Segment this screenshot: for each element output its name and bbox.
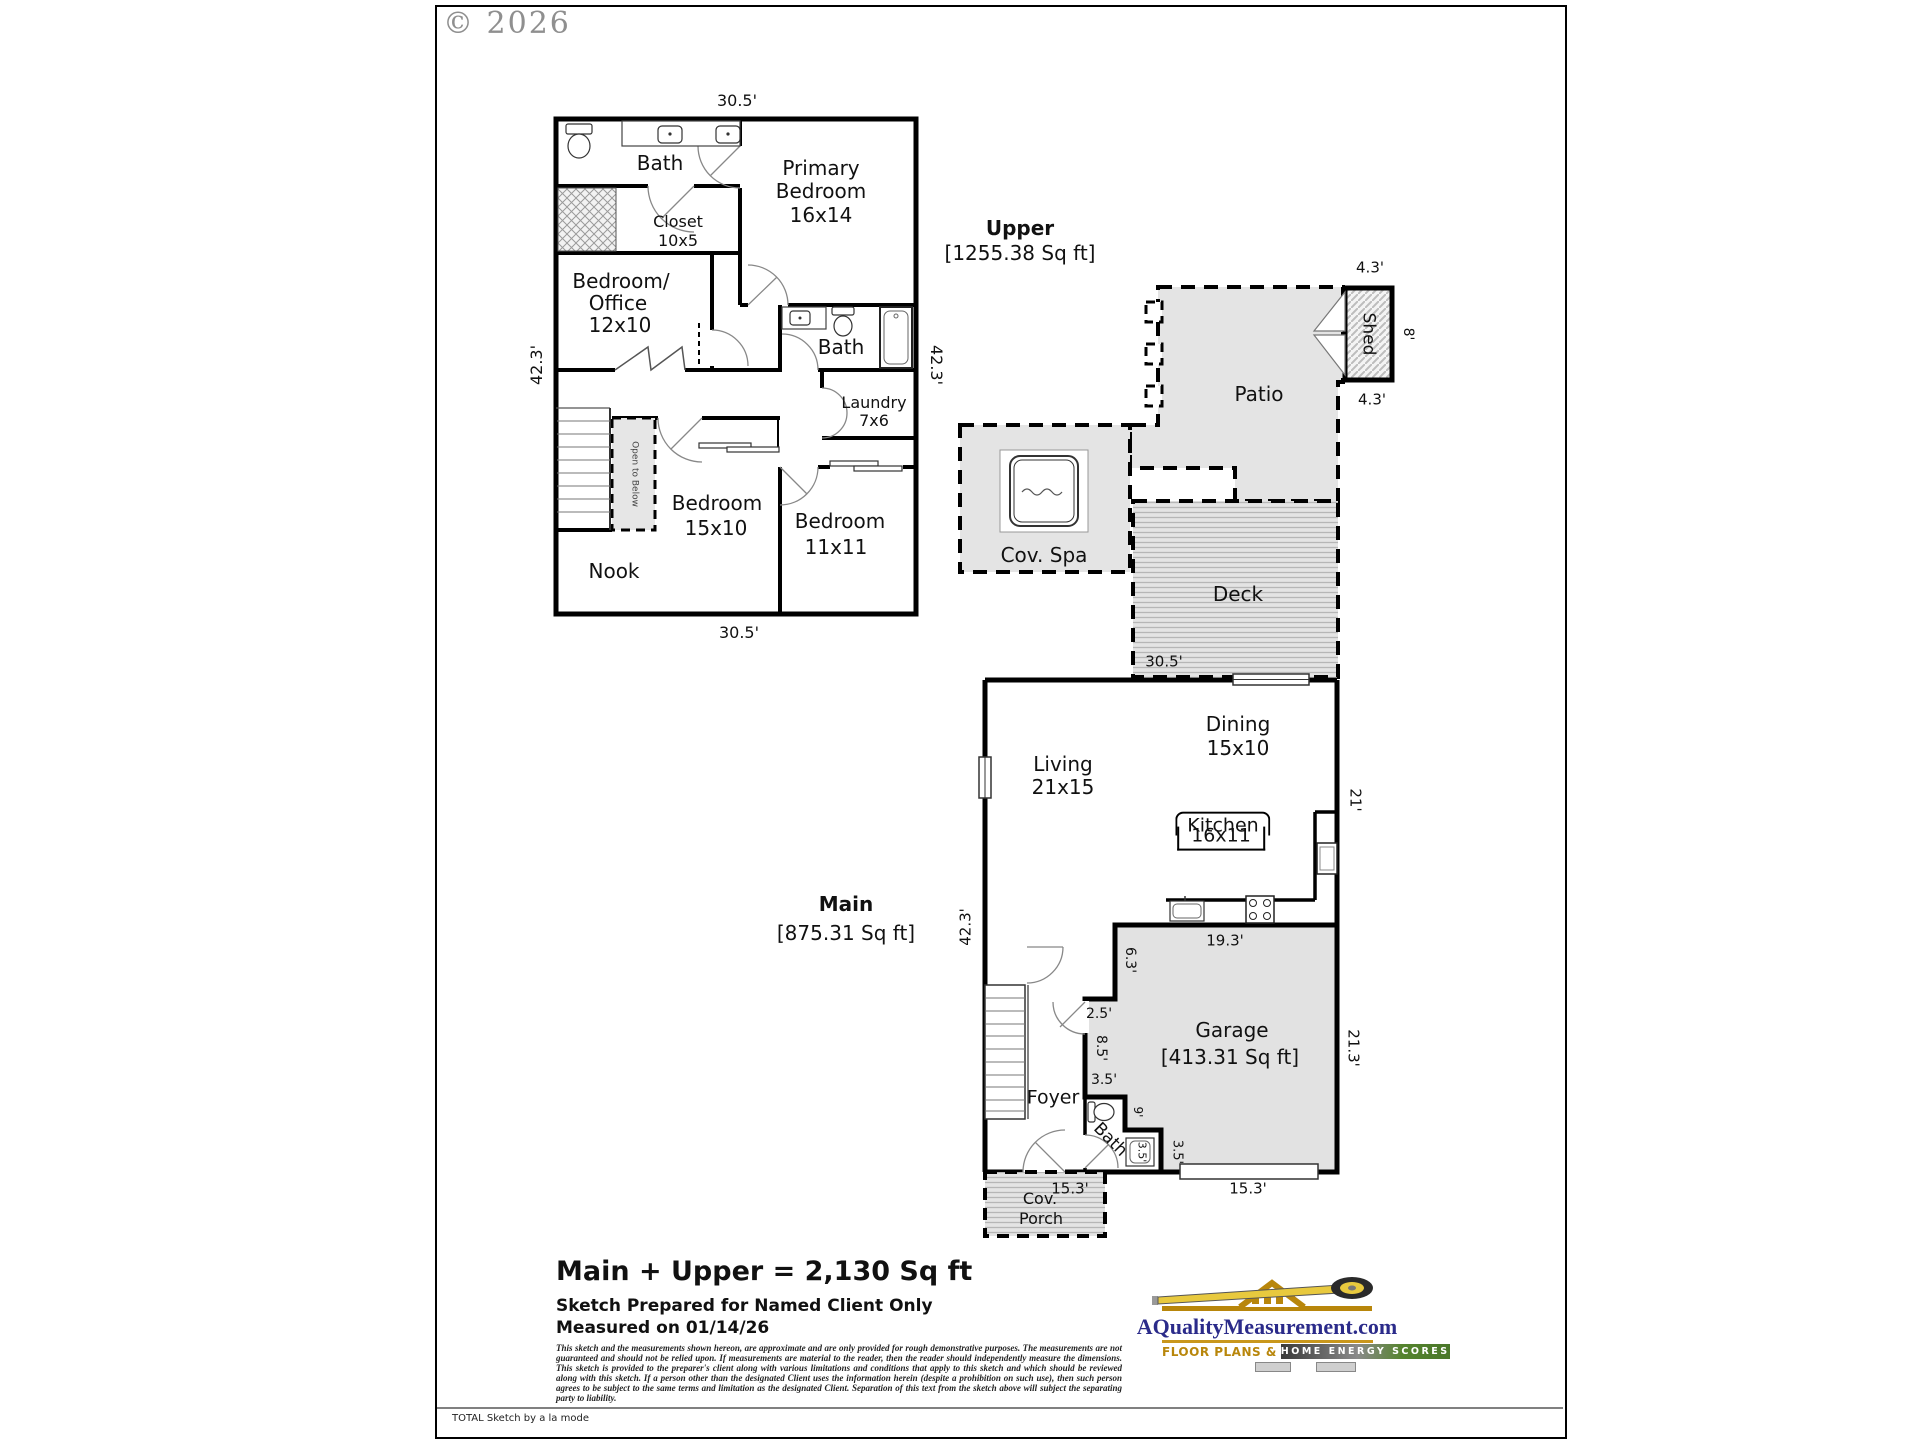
logo-taglines: FLOOR PLANS & HOME ENERGY SCORES (1162, 1344, 1374, 1359)
room-dim-closet: 10x5 (658, 233, 698, 249)
upper-dim-right: 42.3' (928, 345, 944, 385)
room-label-nook: Nook (588, 561, 639, 581)
room-dim-dining: 15x10 (1207, 738, 1270, 758)
footer-summary: Main + Upper = 2,130 Sq ft Sketch Prepar… (556, 1256, 1156, 1403)
tub-icon (880, 307, 912, 368)
room-label-closet: Closet (653, 214, 703, 230)
measured-line: Measured on 01/14/26 (556, 1318, 1156, 1338)
room-label-bath-upper: Bath (637, 153, 684, 173)
room-label-bedoffice-1: Bedroom/ (572, 271, 669, 291)
garage-sqft: [413.31 Sq ft] (1161, 1047, 1299, 1067)
room-label-primary-1: Primary (782, 158, 859, 178)
toilet-icon (566, 124, 592, 158)
porch-label-2: Porch (1019, 1211, 1063, 1227)
room-dim-primary: 16x14 (790, 205, 853, 225)
main-dim-right-top: 21' (1348, 788, 1363, 811)
room-label-living: Living (1033, 754, 1092, 774)
room-dim-bedroom15: 15x10 (685, 518, 748, 538)
logo-domain-text: AQualityMeasurement.com (1137, 1314, 1398, 1340)
bath-dim-9: 9' (1132, 1107, 1144, 1118)
cov-spa-label: Cov. Spa (1001, 545, 1088, 565)
logo-badge (1255, 1362, 1291, 1372)
open-to-below-label: Open to Below (630, 441, 639, 507)
shed-dim-bottom: 4.3' (1358, 393, 1386, 408)
shed-dim-depth: 8' (1401, 328, 1415, 341)
toilet-icon (832, 307, 854, 336)
room-label-bedroom15: Bedroom (672, 493, 762, 513)
garage-dim-35c: 3.5' (1171, 1140, 1184, 1164)
garage-dim-25: 2.5' (1086, 1007, 1112, 1021)
logo-tagline-floorplans: FLOOR PLANS & (1162, 1345, 1277, 1359)
floorplan-drawing (0, 0, 1920, 1440)
room-label-bedoffice-2: Office (589, 293, 647, 313)
bath-dim-35b: 3.5' (1137, 1142, 1148, 1163)
spa-tub-icon (1010, 456, 1078, 526)
upper-dim-left: 42.3' (529, 345, 545, 385)
total-sqft-line: Main + Upper = 2,130 Sq ft (556, 1256, 1156, 1287)
room-label-dining: Dining (1206, 714, 1271, 734)
room-label-laundry: Laundry (841, 395, 906, 411)
room-dim-kitchen: 16x11 (1177, 827, 1265, 851)
stove-icon (1246, 896, 1274, 923)
logo-badge (1316, 1362, 1356, 1372)
disclaimer-text: This sketch and the measurements shown h… (556, 1343, 1122, 1403)
logo-tagline-energy: HOME ENERGY SCORES (1281, 1344, 1450, 1359)
shed-dim-top: 4.3' (1356, 261, 1384, 276)
room-dim-living: 21x15 (1032, 777, 1095, 797)
room-label-primary-2: Bedroom (776, 181, 866, 201)
room-dim-bedroom11: 11x11 (805, 537, 868, 557)
patio-label: Patio (1234, 384, 1283, 404)
room-dim-bedoffice: 12x10 (589, 315, 652, 335)
upper-sqft: [1255.38 Sq ft] (945, 243, 1096, 263)
garage-dim-63: 6.3' (1123, 947, 1137, 973)
upper-title: Upper (986, 218, 1054, 238)
room-dim-laundry: 7x6 (859, 413, 889, 429)
garage-door-icon (1180, 1164, 1318, 1179)
prepared-line: Sketch Prepared for Named Client Only (556, 1296, 1156, 1316)
deck-label: Deck (1213, 584, 1263, 604)
sliding-glass-door-icon (1233, 674, 1309, 685)
garage-dim-top: 19.3' (1206, 934, 1244, 949)
floorplan-sheet: © 2026 (0, 0, 1920, 1440)
room-label-bedroom11: Bedroom (795, 511, 885, 531)
upper-dim-bottom: 30.5' (719, 625, 759, 641)
garage-dim-85: 8.5' (1094, 1035, 1108, 1061)
main-title: Main (819, 894, 874, 914)
room-label-bath2: Bath (818, 337, 865, 357)
toilet-icon (1088, 1102, 1114, 1122)
shower-icon (558, 188, 616, 251)
main-sqft: [875.31 Sq ft] (777, 923, 915, 943)
shed-label: Shed (1360, 313, 1377, 356)
window-icon (979, 757, 991, 798)
room-label-foyer: Foyer (1027, 1089, 1080, 1108)
fridge-icon (1317, 843, 1337, 874)
room-label-garage: Garage (1195, 1020, 1268, 1040)
main-dim-right-bottom: 21.3' (1346, 1029, 1361, 1067)
garage-dim-35a: 3.5' (1091, 1073, 1117, 1087)
main-dim-left: 42.3' (959, 908, 974, 946)
sketch-software-note: TOTAL Sketch by a la mode (452, 1413, 589, 1424)
garage-dim-bottom: 15.3' (1229, 1182, 1267, 1197)
porch-label-1: Cov. (1023, 1191, 1057, 1207)
deck-dim: 30.5' (1145, 655, 1183, 670)
upper-dim-top: 30.5' (717, 93, 757, 109)
main-stairs (985, 985, 1028, 1119)
